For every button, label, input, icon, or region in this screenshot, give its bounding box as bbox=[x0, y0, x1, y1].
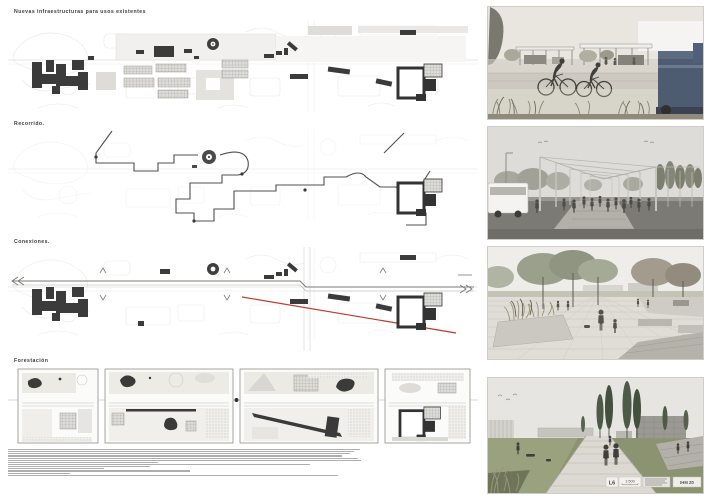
route-line bbox=[96, 131, 430, 225]
fine-print bbox=[8, 449, 361, 477]
presentation-board: Nuevas infraestructuras para usos existe… bbox=[0, 0, 707, 500]
fine-print-line bbox=[8, 462, 158, 463]
section-title-conexiones: Conexiones. bbox=[14, 239, 50, 245]
bench bbox=[638, 319, 672, 326]
panel-code: IHM Z0 bbox=[680, 480, 694, 485]
fine-print-line bbox=[8, 451, 354, 452]
fine-print-line bbox=[8, 464, 310, 465]
bus bbox=[488, 183, 528, 218]
fine-print-line bbox=[8, 468, 104, 469]
fine-print-line bbox=[8, 449, 360, 450]
fine-print-line bbox=[8, 458, 358, 459]
render-lawn-path-cypresses: L6 1:500 IHM Z0 bbox=[487, 377, 704, 494]
section-title-forestacion: Forestación bbox=[14, 358, 48, 364]
fine-print-line bbox=[8, 473, 70, 474]
fine-print-line bbox=[8, 455, 342, 456]
fine-print-line bbox=[8, 470, 190, 471]
plan-nuevas-infraestructuras bbox=[8, 20, 478, 112]
title-block: L6 1:500 IHM Z0 bbox=[606, 477, 701, 487]
plan3-buildings bbox=[32, 255, 416, 326]
car bbox=[673, 300, 689, 306]
fine-print-line bbox=[8, 453, 350, 454]
fine-print-line bbox=[8, 460, 361, 461]
plan-forestacion bbox=[8, 367, 478, 447]
plan-conexiones bbox=[8, 247, 478, 351]
plan1-station-complex bbox=[398, 64, 442, 101]
tram-vehicle bbox=[656, 43, 703, 119]
render-pergola-promenade bbox=[487, 126, 704, 240]
fine-print-line bbox=[8, 475, 338, 476]
fine-print-line bbox=[8, 466, 150, 467]
scale-label: 1:500 bbox=[625, 480, 635, 484]
render-tree-plaza bbox=[487, 246, 704, 360]
plan-recorrido bbox=[8, 129, 478, 231]
section-title-infraestructuras: Nuevas infraestructuras para usos existe… bbox=[14, 9, 146, 15]
section-title-recorrido: Recorrido. bbox=[14, 121, 44, 127]
plan2-station-complex bbox=[398, 179, 442, 216]
render-tram-stop-cycleway bbox=[487, 6, 704, 120]
plan2-roundabout bbox=[192, 150, 216, 168]
sheet-number: L6 bbox=[609, 481, 615, 487]
plan3-station-complex bbox=[398, 293, 442, 330]
axis-node bbox=[235, 398, 239, 402]
route-nodes bbox=[94, 155, 306, 222]
plan1-roundabout bbox=[207, 38, 219, 50]
